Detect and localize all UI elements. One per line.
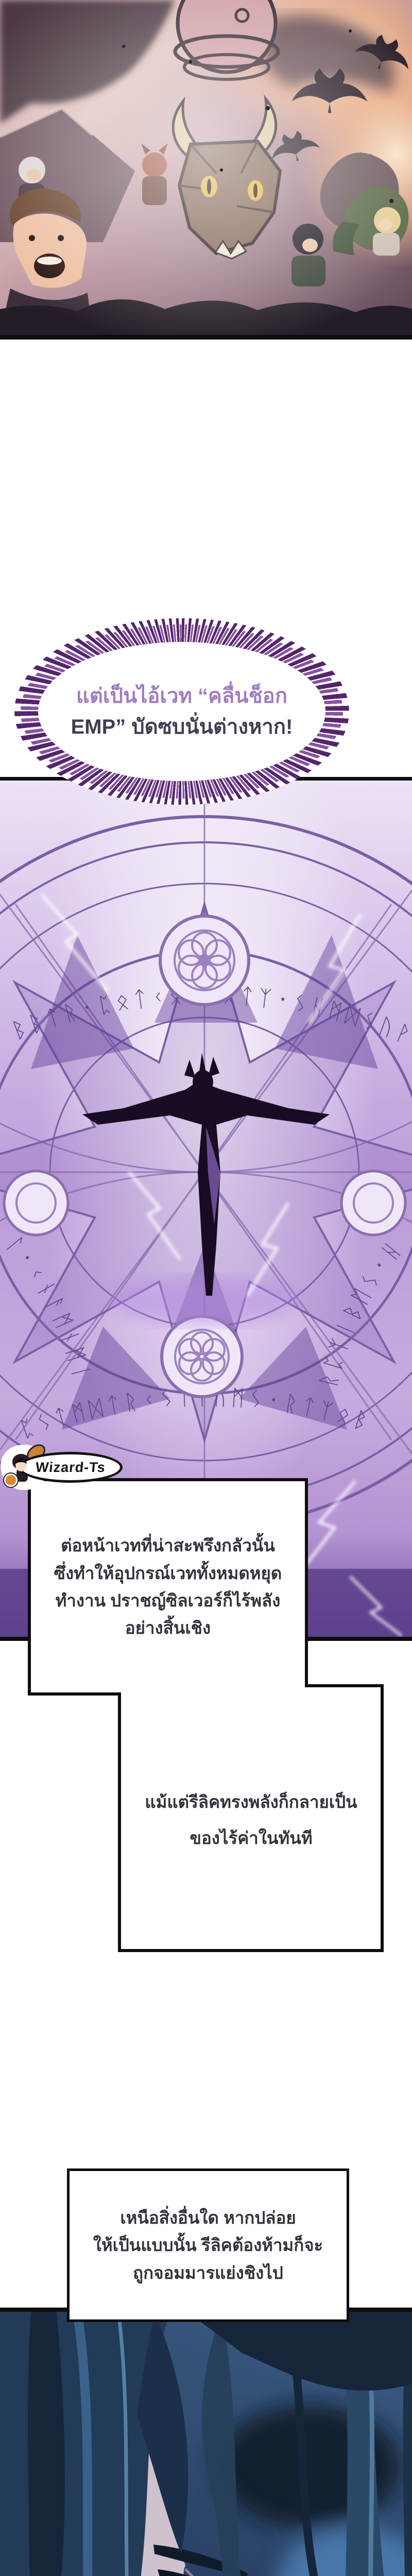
caption-box-2: แม้แต่รีลิคทรงพลังก็กลายเป็น ของไร้ค่าใน… xyxy=(121,1692,381,1947)
hair-blue xyxy=(0,2312,412,2576)
burst-line-1: แต่เป็นไอ้เวท “คลื่นช็อก xyxy=(76,681,287,711)
battle-panel xyxy=(0,0,412,340)
figure-glow xyxy=(111,1277,296,1325)
caption2-line: แม้แต่รีลิคทรงพลังก็กลายเป็น xyxy=(145,1784,357,1820)
caption1-line: ทำงาน ปราชญ์ซิลเวอร์ก็ไร้พลัง xyxy=(56,1587,281,1614)
caption2-line: ของไร้ค่าในทันที xyxy=(190,1820,312,1856)
caption1-line: อย่างสิ้นเชิง xyxy=(125,1614,211,1641)
caption3-line: เหนือสิ่งอื่นใด หากปล่อย xyxy=(120,2204,296,2231)
burst-bubble-body: แต่เป็นไอ้เวท “คลื่นช็อก EMP” บัดซบนั่นต… xyxy=(38,642,325,781)
badge-label: Wizard-Ts xyxy=(35,1460,106,1476)
burst-speech-bubble: แต่เป็นไอ้เวท “คลื่นช็อก EMP” บัดซบนั่นต… xyxy=(14,618,349,805)
caption1-line: ซึ่งทำให้อุปกรณ์เวททั้งหมดหยุด xyxy=(54,1560,282,1587)
caption3-line: ถูกจอมมารแย่งชิงไป xyxy=(133,2259,283,2286)
webtoon-page: แต่เป็นไอ้เวท “คลื่นช็อก EMP” บัดซบนั่นต… xyxy=(0,0,412,2576)
hex-flower-medallion xyxy=(160,916,249,1005)
caption1-line: ต่อหน้าเวทที่น่าสะพรึงกลัวนั้น xyxy=(61,1532,275,1559)
caption3-line: ให้เป็นแบบนั้น รีลิคต้องห้ามก็จะ xyxy=(93,2231,323,2259)
face-closeup-panel xyxy=(0,2308,412,2576)
bottom-medallion xyxy=(162,1316,242,1397)
haze-overlay xyxy=(0,0,412,335)
orange-charm xyxy=(4,1473,18,1487)
caption-box-1: ต่อหน้าเวทที่น่าสะพรึงกลัวนั้น ซึ่งทำให้… xyxy=(29,1480,306,1694)
badge-oval: Wizard-Ts xyxy=(19,1452,123,1483)
burst-line-2: EMP” บัดซบนั่นต่างหาก! xyxy=(71,711,293,742)
face-illustration xyxy=(0,2312,412,2576)
chibi-face xyxy=(15,1458,27,1471)
battle-illustration xyxy=(0,0,412,335)
caption-box-3: เหนือสิ่งอื่นใด หากปล่อย ให้เป็นแบบนั้น … xyxy=(67,2168,349,2322)
translator-badge: Wizard-Ts xyxy=(1,1443,127,1491)
